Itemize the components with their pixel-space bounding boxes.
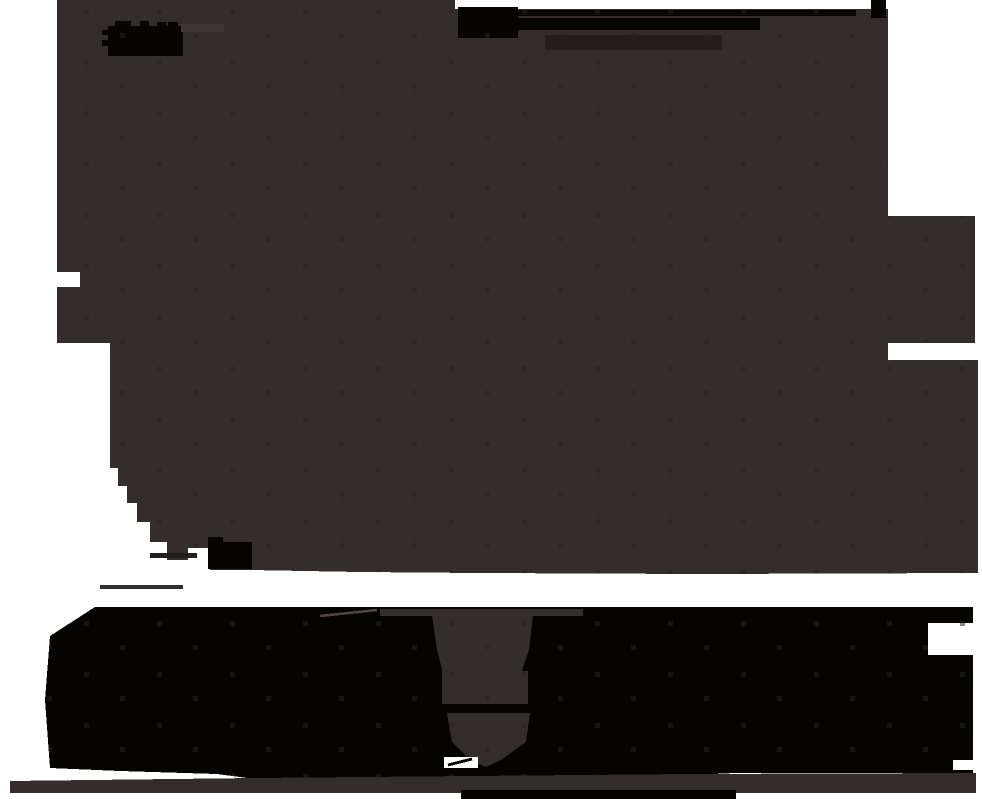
bottom-black-strip xyxy=(461,790,736,799)
noise-overlay xyxy=(0,0,982,799)
faint-floor-line xyxy=(100,585,183,589)
photo-shapes xyxy=(0,0,982,799)
underexposed-photo xyxy=(0,0,982,799)
